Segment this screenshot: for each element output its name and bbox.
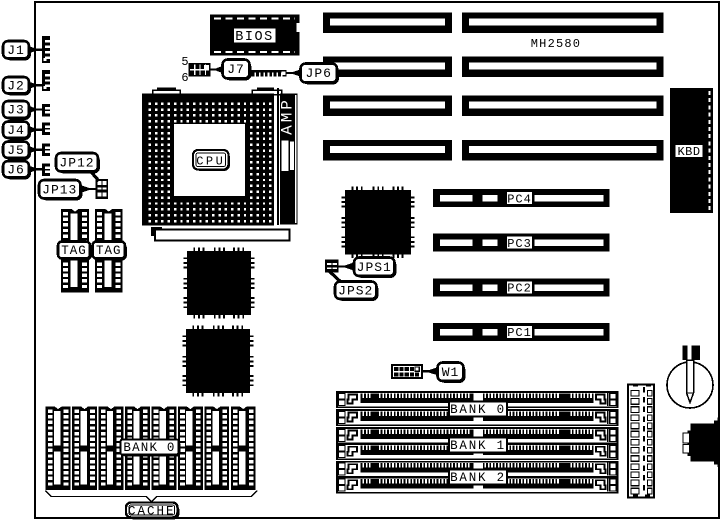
svg-text:JP6: JP6	[306, 66, 332, 81]
svg-text:BANK 1: BANK 1	[450, 439, 506, 453]
svg-text:AMP: AMP	[279, 97, 297, 135]
svg-text:PC3: PC3	[507, 237, 532, 251]
svg-text:BANK 0: BANK 0	[450, 403, 506, 417]
svg-text:PC2: PC2	[507, 282, 532, 296]
svg-text:CPU: CPU	[196, 154, 225, 168]
svg-text:JPS1: JPS1	[357, 260, 392, 275]
svg-text:6: 6	[181, 71, 188, 85]
svg-text:J7: J7	[227, 62, 245, 77]
svg-text:JP12: JP12	[59, 155, 94, 170]
svg-text:PC1: PC1	[507, 326, 532, 340]
svg-text:JPS2: JPS2	[338, 283, 373, 298]
svg-text:KBD: KBD	[677, 145, 700, 159]
svg-text:J1: J1	[7, 43, 25, 58]
svg-text:MH2580: MH2580	[531, 37, 581, 51]
svg-text:TAG: TAG	[96, 244, 122, 258]
svg-text:5: 5	[181, 55, 188, 69]
svg-text:PC4: PC4	[507, 192, 532, 206]
svg-text:J6: J6	[7, 162, 25, 177]
svg-text:CACHE: CACHE	[128, 504, 176, 518]
svg-text:BANK 2: BANK 2	[450, 471, 506, 485]
svg-text:TAG: TAG	[61, 244, 87, 258]
svg-text:W1: W1	[442, 365, 460, 380]
svg-text:J5: J5	[7, 143, 25, 158]
svg-text:BANK 0: BANK 0	[123, 441, 175, 455]
svg-text:JP13: JP13	[42, 182, 77, 197]
svg-text:J2: J2	[7, 78, 25, 93]
svg-text:J3: J3	[7, 103, 25, 118]
svg-text:J4: J4	[7, 123, 25, 138]
svg-text:BIOS: BIOS	[235, 30, 273, 45]
